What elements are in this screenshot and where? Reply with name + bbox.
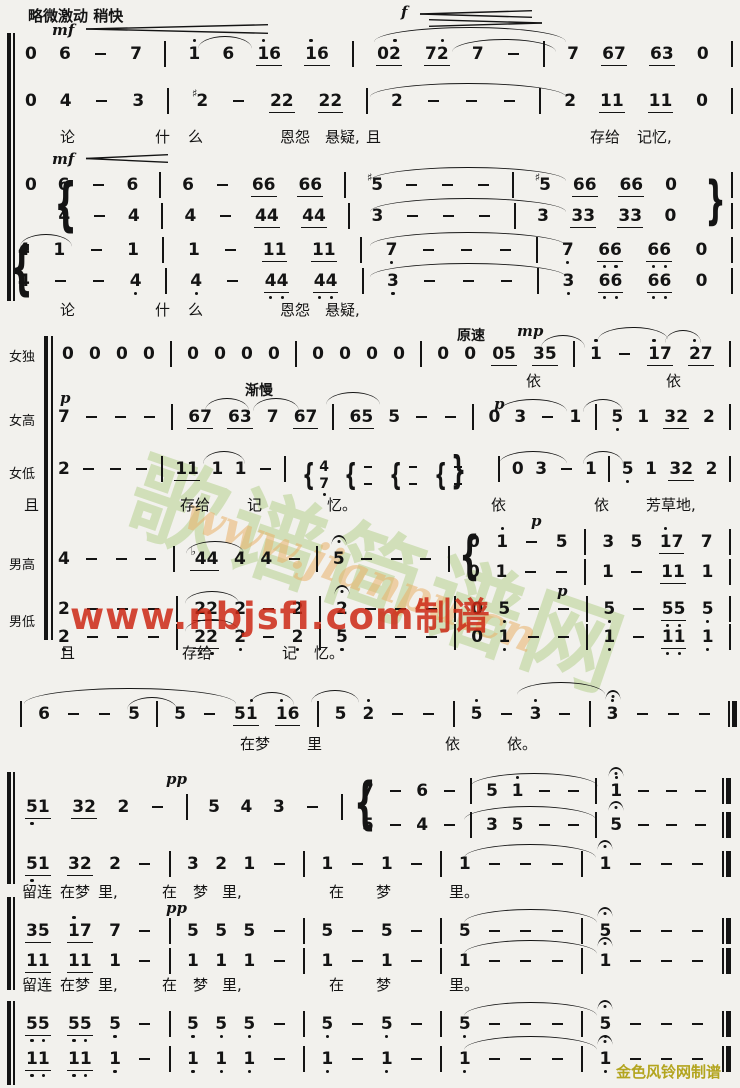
note-char: 1: [175, 460, 187, 478]
watermark-nbjsfl-url: www.nbjsfl.com制谱: [70, 586, 491, 640]
note-char: [409, 952, 424, 970]
note-char: [409, 1050, 424, 1068]
note-char: 7: [701, 533, 713, 551]
note-group: [137, 952, 152, 970]
octave-dot-below: [30, 822, 33, 825]
note-char: [628, 855, 643, 873]
system-bracket: [13, 1001, 15, 1085]
note-char: 3: [68, 855, 80, 873]
note-group: [114, 550, 129, 568]
note-char: [690, 952, 705, 970]
beamed-note-group: 17: [647, 345, 673, 366]
chord-brace-icon: {: [390, 461, 403, 491]
lyric-syllable: 里,: [222, 881, 242, 902]
dynamic-marking: p: [531, 512, 542, 530]
system-bracket: [7, 772, 11, 884]
note-char: [66, 705, 81, 723]
note-group: [113, 408, 128, 426]
note-group: [218, 207, 233, 225]
barline: [729, 559, 731, 585]
note-char: 2: [706, 460, 718, 478]
note-group: [690, 922, 705, 940]
note-group: [272, 952, 287, 970]
note-char: 1: [243, 952, 255, 970]
note-char: 4: [277, 272, 289, 290]
note-char: 4: [314, 272, 326, 290]
lyric-syllable: 依: [526, 370, 541, 391]
note-char: 6: [126, 176, 138, 194]
note-group: 1: [187, 952, 199, 970]
note-char: 6: [288, 705, 300, 723]
barline: [586, 596, 588, 622]
note-group: 3: [607, 705, 619, 723]
note-group: 5: [471, 705, 483, 723]
note-char: 1: [637, 408, 649, 426]
music-row: 21111{47{{{03151322: [58, 460, 731, 491]
note-char: 2: [58, 600, 70, 618]
note-char: 3: [607, 705, 619, 723]
note-group: 1: [645, 460, 657, 478]
note-char: 2: [215, 855, 227, 873]
note-group: 0: [665, 176, 677, 194]
note-char: [137, 922, 152, 940]
note-char: [225, 272, 240, 290]
note-group: [550, 1015, 565, 1033]
beamed-note-group: 11: [262, 241, 288, 262]
slur-tie: [541, 335, 585, 348]
slur-tie: [499, 399, 567, 412]
note-char: 3: [583, 207, 595, 225]
note-group: [617, 345, 632, 363]
note-group: [94, 92, 109, 110]
note-group: [409, 1050, 424, 1068]
barline: [440, 851, 442, 877]
beamed-note-group: 66: [251, 176, 277, 197]
note-group: 1: [701, 563, 713, 581]
note-group: 0: [25, 92, 37, 110]
voice-brace: }: [705, 175, 725, 227]
note-char: 1: [38, 1050, 50, 1068]
note-group: 0: [214, 345, 226, 363]
note-char: 5: [68, 1015, 80, 1033]
note-char: 3: [602, 533, 614, 551]
note-char: 6: [182, 176, 194, 194]
note-group: [137, 855, 152, 873]
barline: [173, 546, 175, 572]
note-char: 7: [109, 922, 121, 940]
note-char: [659, 855, 674, 873]
lyric-syllable: 里,: [98, 881, 118, 902]
note-char: 3: [664, 408, 676, 426]
note-char: 5: [459, 922, 471, 940]
note-group: 2: [706, 460, 718, 478]
note-group: [659, 952, 674, 970]
slur-tie: [470, 773, 598, 787]
note-char: [350, 952, 365, 970]
note-group: 1: [188, 241, 200, 259]
fermata-icon: [605, 690, 620, 700]
note-group: [84, 408, 99, 426]
note-group: 6: [59, 45, 71, 63]
final-barline: [722, 948, 731, 974]
note-char: 5: [80, 1015, 92, 1033]
note-char: [137, 1015, 152, 1033]
note-char: 5: [388, 408, 400, 426]
note-group: 5: [321, 922, 333, 940]
voice-label: 男高: [9, 554, 35, 573]
note-char: 2: [689, 345, 701, 363]
note-char: 0: [393, 345, 405, 363]
note-char: 6: [598, 241, 610, 259]
barline: [440, 948, 442, 974]
note-char: [350, 1015, 365, 1033]
note-group: [629, 563, 644, 581]
lyric-syllable: 恩怨: [280, 126, 310, 147]
beamed-note-group: 05: [491, 345, 517, 366]
note-group: 0: [116, 345, 128, 363]
octave-dot-below: [652, 296, 655, 299]
music-row: 011111: [468, 563, 731, 585]
slur-tie: [665, 330, 701, 343]
barline: [284, 456, 286, 482]
note-char: [487, 922, 502, 940]
note-char: 5: [187, 922, 199, 940]
note-group: 0: [187, 345, 199, 363]
octave-dot-below: [191, 1070, 194, 1073]
octave-dot-below: [42, 1039, 45, 1042]
note-group: 2: [118, 798, 130, 816]
note-group: [487, 922, 502, 940]
fermata-icon: [598, 840, 613, 850]
note-char: [628, 952, 643, 970]
note-char: 1: [243, 1050, 255, 1068]
note-group: [409, 952, 424, 970]
note-char: 1: [673, 563, 685, 581]
lyric-syllable: 且: [60, 642, 75, 663]
note-char: 1: [80, 952, 92, 970]
note-char: [97, 705, 112, 723]
tempo-marking: 略微激动 稍快: [28, 5, 123, 26]
lyric-syllable: 在: [162, 974, 177, 995]
fermata-icon: [598, 1000, 613, 1010]
note-char: [518, 1050, 533, 1068]
note-char: 0: [241, 345, 253, 363]
note-char: 1: [305, 45, 317, 63]
barline: [595, 812, 597, 838]
note-group: [143, 550, 158, 568]
barline: [589, 701, 591, 727]
dynamic-marking: pp: [166, 770, 187, 788]
note-group: [137, 922, 152, 940]
beamed-note-group: 66: [297, 176, 323, 197]
note-char: [418, 550, 433, 568]
note-char: [629, 563, 644, 581]
barline: [360, 237, 362, 263]
note-char: 7: [319, 477, 329, 491]
note-char: 1: [381, 1050, 393, 1068]
octave-dot-below: [390, 261, 393, 264]
note-char: 5: [335, 705, 347, 723]
octave-dot-below: [385, 1035, 388, 1038]
note-group: 5: [187, 922, 199, 940]
note-group: [89, 241, 104, 259]
octave-dot-below: [666, 652, 669, 655]
barline: [169, 918, 171, 944]
octave-dot-above: [475, 699, 478, 702]
voice-label: 女独: [9, 346, 35, 365]
lyric-syllable: 什: [155, 299, 170, 320]
note-char: 6: [38, 705, 50, 723]
note-char: 5: [674, 600, 686, 618]
octave-dot-above: [501, 527, 504, 530]
note-group: 3: [187, 855, 199, 873]
final-barline: [722, 918, 731, 944]
fermata-icon: [598, 907, 613, 917]
note-char: 0: [143, 345, 155, 363]
note-char: 1: [599, 1050, 611, 1068]
barline: [440, 918, 442, 944]
note-group: 3: [602, 533, 614, 551]
note-group: [350, 1015, 365, 1033]
note-char: 2: [270, 92, 282, 110]
score-canvas: 歌谱简谱网 www.jianpu.cn www.nbjsfl.com制谱 金色风…: [0, 0, 740, 1088]
system-bracket: [44, 336, 48, 640]
beamed-note-group: 67: [187, 408, 213, 429]
chord-column: 47: [319, 460, 329, 491]
chord-column: [407, 460, 419, 491]
note-char: 3: [26, 922, 38, 940]
note-char: [631, 628, 646, 646]
note-char: [550, 952, 565, 970]
note-group: 0: [697, 45, 709, 63]
note-char: [84, 408, 99, 426]
octave-dot-below: [615, 296, 618, 299]
note-group: [137, 1050, 152, 1068]
note-group: [272, 1015, 287, 1033]
note-group: 5: [215, 1015, 227, 1033]
note-group: [66, 705, 81, 723]
note-char: 5: [321, 1015, 333, 1033]
note-group: 1: [215, 952, 227, 970]
note-group: [556, 628, 571, 646]
note-group: [697, 705, 712, 723]
note-char: [114, 550, 129, 568]
note-group: [487, 1050, 502, 1068]
note-group: 1: [381, 855, 393, 873]
note-group: 4: [58, 550, 70, 568]
note-group: 0: [25, 176, 37, 194]
sheet-music-page: { "page": {"width": 740, "height": 1088,…: [0, 0, 740, 1088]
beamed-note-group: 11: [599, 92, 625, 113]
note-char: 6: [650, 45, 662, 63]
note-group: 3: [273, 798, 285, 816]
note-char: 4: [265, 272, 277, 290]
note-group: 7: [567, 45, 579, 63]
note-char: [258, 460, 273, 478]
note-group: 5: [187, 1015, 199, 1033]
note-group: [93, 45, 108, 63]
note-char: [93, 45, 108, 63]
note-char: [287, 550, 302, 568]
note-char: 2: [363, 705, 375, 723]
note-group: [91, 176, 106, 194]
note-group: [631, 628, 646, 646]
note-char: [362, 477, 374, 491]
note-char: 5: [321, 922, 333, 940]
note-char: 0: [25, 45, 37, 63]
tempo-marking: 渐慢: [245, 380, 273, 400]
note-group: 1: [599, 952, 611, 970]
note-char: 1: [187, 1050, 199, 1068]
note-char: [215, 176, 230, 194]
barline: [303, 1011, 305, 1037]
note-char: [137, 855, 152, 873]
note-char: [693, 782, 708, 800]
note-group: [350, 1050, 365, 1068]
note-char: 6: [610, 272, 622, 290]
barline: [472, 404, 474, 430]
note-char: [94, 92, 109, 110]
barline: [731, 203, 733, 229]
beamed-note-group: 17: [659, 533, 685, 554]
note-char: 4: [128, 207, 140, 225]
note-char: [272, 1015, 287, 1033]
crescendo-hairpin-icon: [420, 10, 532, 18]
beamed-note-group: 67: [293, 408, 319, 429]
note-group: [523, 563, 538, 581]
note-char: 5: [381, 1015, 393, 1033]
note-char: 2: [196, 92, 208, 110]
barline: [731, 88, 733, 114]
lyric-syllable: 在: [329, 974, 344, 995]
note-group: 5: [610, 816, 622, 834]
note-group: [92, 207, 107, 225]
note-char: [91, 272, 106, 290]
note-char: [89, 241, 104, 259]
octave-dot-below: [626, 480, 629, 483]
system-bracket: [13, 897, 15, 990]
note-char: 5: [662, 600, 674, 618]
note-group: [554, 563, 569, 581]
lyric-syllable: 存给: [590, 126, 620, 147]
chord-column: [362, 460, 374, 491]
beamed-note-group: 11: [648, 92, 674, 113]
note-group: 0: [696, 272, 708, 290]
note-char: 1: [569, 408, 581, 426]
note-group: 0: [696, 92, 708, 110]
octave-dot-below: [463, 1035, 466, 1038]
note-group: 1: [127, 241, 139, 259]
note-char: 1: [312, 241, 324, 259]
barline: [171, 404, 173, 430]
beamed-note-group: 32: [67, 855, 93, 876]
note-group: 1: [459, 952, 471, 970]
octave-dot-below: [72, 1039, 75, 1042]
octave-dot-below: [326, 1035, 329, 1038]
lyric-syllable: 里。: [449, 881, 479, 902]
barline: [169, 948, 171, 974]
system-bracket: [13, 772, 15, 884]
note-group: 3: [530, 705, 542, 723]
lyric-syllable: 依: [666, 370, 681, 391]
note-group: [390, 705, 405, 723]
slur-tie: [24, 688, 236, 704]
note-group: [53, 272, 68, 290]
note-char: 5: [361, 408, 373, 426]
lyric-syllable: 论: [60, 126, 75, 147]
note-group: [526, 600, 541, 618]
barline: [344, 172, 346, 198]
note-char: 4: [319, 460, 329, 474]
beamed-note-group: 51: [25, 798, 51, 819]
note-char: 0: [268, 345, 280, 363]
note-char: 1: [38, 798, 50, 816]
note-char: 0: [187, 345, 199, 363]
note-char: 7: [80, 922, 92, 940]
note-group: [91, 272, 106, 290]
beamed-note-group: 55: [661, 600, 687, 621]
note-char: 1: [127, 241, 139, 259]
music-row: 555555555555: [25, 1015, 731, 1037]
note-char: 1: [459, 952, 471, 970]
voice-brace: {: [54, 175, 77, 233]
note-group: 4: [184, 207, 196, 225]
octave-dot-below: [608, 648, 611, 651]
note-group: [659, 1015, 674, 1033]
lyric-syllable: 悬疑,: [325, 126, 360, 147]
note-group: [518, 1015, 533, 1033]
barline: [584, 559, 586, 585]
note-group: 4: [241, 798, 253, 816]
note-char: 1: [381, 952, 393, 970]
note-group: 2: [109, 855, 121, 873]
note-char: 4: [314, 207, 326, 225]
note-group: 0: [696, 241, 708, 259]
note-group: 1: [496, 533, 508, 551]
system-bracket: [51, 336, 53, 640]
note-group: 0: [464, 345, 476, 363]
slur-tie: [370, 263, 566, 277]
beamed-note-group: 63: [649, 45, 675, 66]
beamed-note-group: 65: [349, 408, 375, 429]
note-char: [91, 176, 106, 194]
note-char: 1: [496, 563, 508, 581]
octave-dot-below: [603, 296, 606, 299]
note-group: [150, 798, 165, 816]
note-char: 5: [187, 1015, 199, 1033]
note-group: 7: [58, 408, 70, 426]
note-char: 6: [317, 45, 329, 63]
note-char: 5: [599, 1015, 611, 1033]
octave-dot-below: [113, 1035, 116, 1038]
note-group: [389, 550, 404, 568]
note-group: [557, 705, 572, 723]
note-group: 5: [603, 600, 615, 618]
barline: [448, 546, 450, 572]
barline: [420, 341, 422, 367]
note-char: [150, 798, 165, 816]
note-char: 0: [492, 345, 504, 363]
note-char: 1: [496, 533, 508, 551]
barline: [170, 341, 172, 367]
note-char: 2: [564, 92, 576, 110]
beamed-note-group: 33: [617, 207, 643, 228]
note-group: [690, 855, 705, 873]
beamed-note-group: 22: [318, 92, 344, 113]
note-char: 4: [190, 272, 202, 290]
note-char: 3: [630, 207, 642, 225]
note-char: 1: [215, 952, 227, 970]
